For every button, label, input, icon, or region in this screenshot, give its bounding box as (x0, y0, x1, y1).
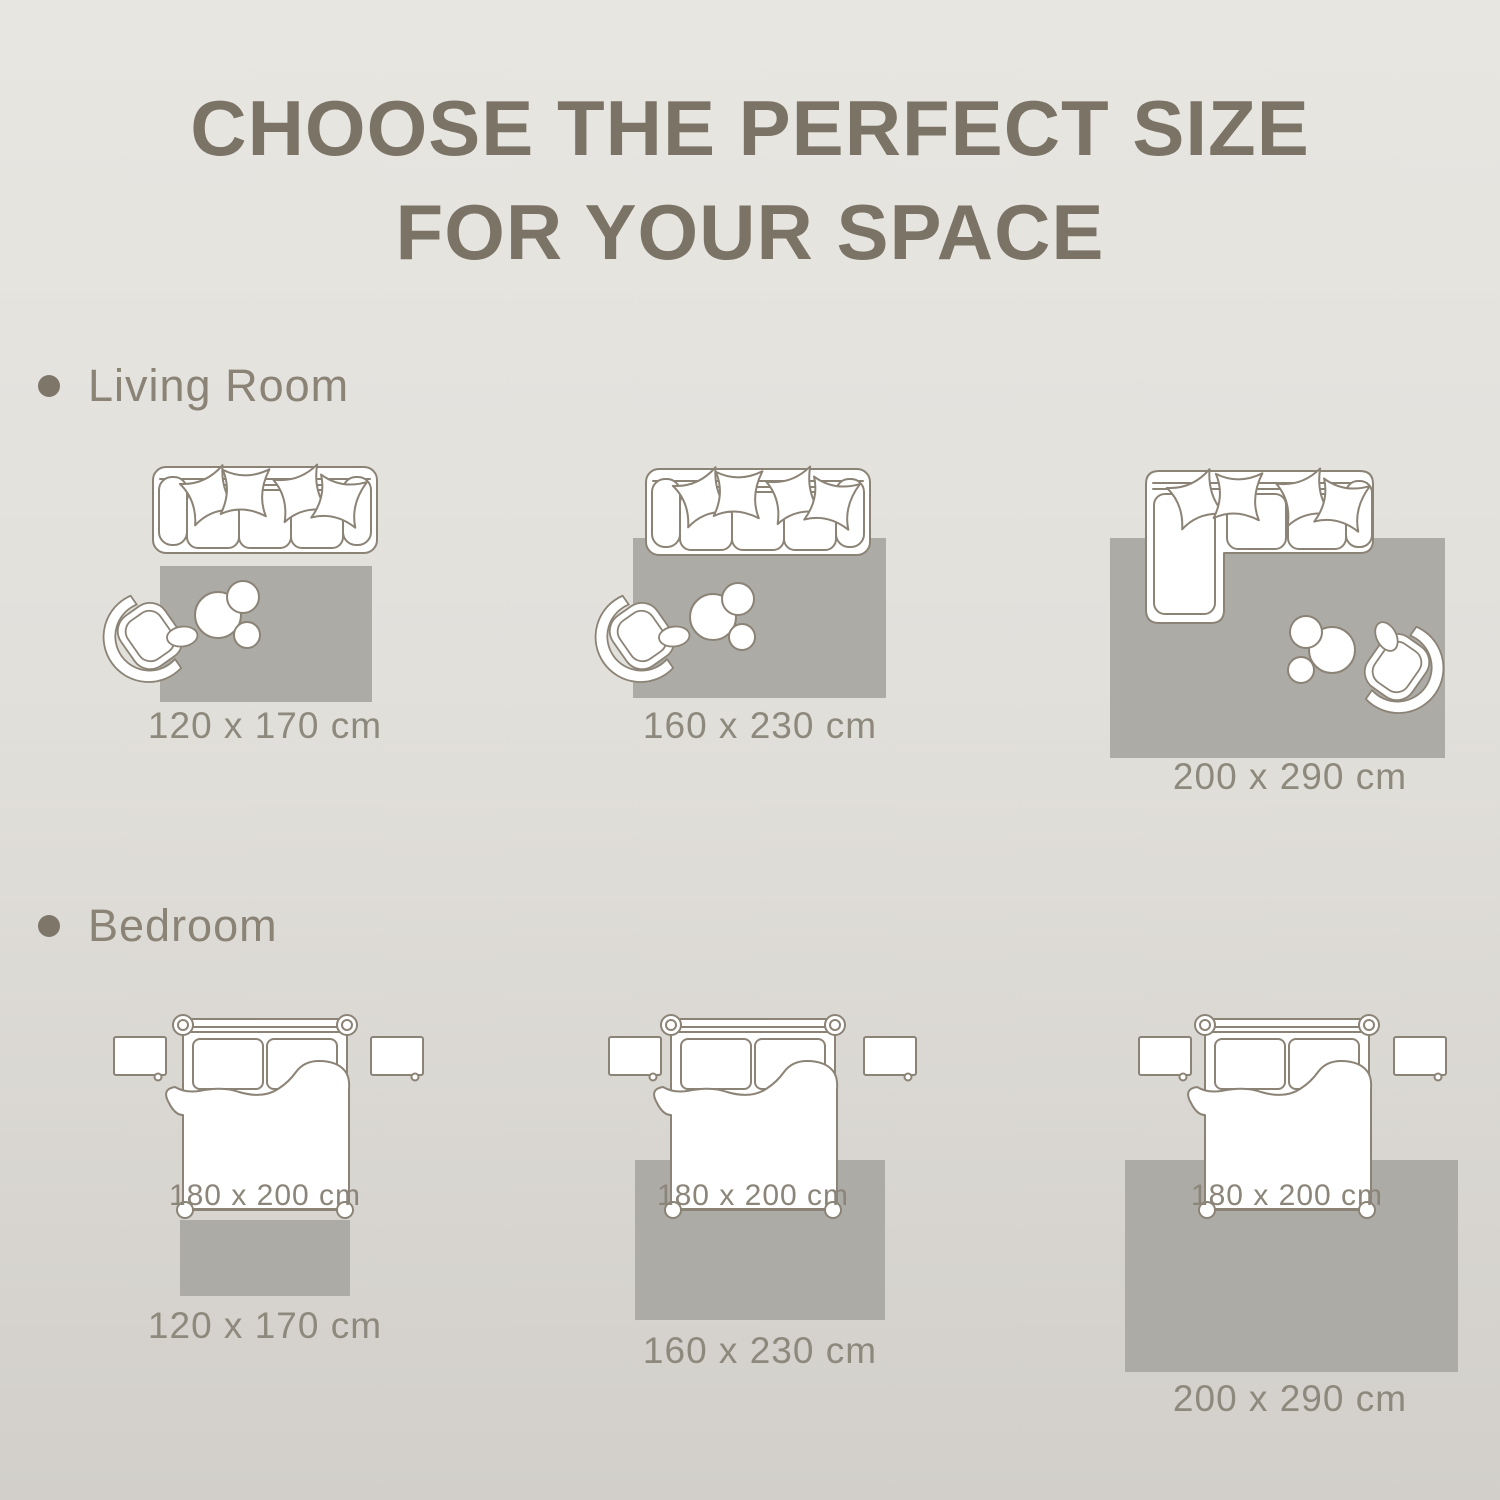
rug-size-label: 160 x 230 cm (595, 705, 925, 747)
page-title-line-2: FOR YOUR SPACE (0, 180, 1500, 284)
section-label-bedroom: Bedroom (88, 900, 278, 952)
sofa-illustration (646, 465, 870, 555)
section-label-living-room: Living Room (88, 360, 349, 412)
nightstand-illustration (609, 1037, 661, 1081)
living-room-figure-2 (590, 455, 920, 705)
living-room-figure-3 (1080, 455, 1480, 785)
rug-160x230 (633, 538, 886, 698)
page-title-line-1: CHOOSE THE PERFECT SIZE (0, 76, 1500, 180)
bed-size-label: 180 x 200 cm (657, 1179, 849, 1212)
rug-size-label: 120 x 170 cm (100, 1305, 430, 1347)
bed-size-label: 180 x 200 cm (169, 1179, 361, 1212)
bedroom-figure-3: 180 x 200 cm (1080, 1005, 1500, 1385)
nightstand-illustration (371, 1037, 423, 1081)
rug-size-infographic: CHOOSE THE PERFECT SIZE FOR YOUR SPACE L… (0, 0, 1500, 1500)
bedroom-figure-2: 180 x 200 cm (570, 1005, 950, 1335)
rug-size-label: 120 x 170 cm (100, 705, 430, 747)
bullet-icon (38, 375, 60, 397)
bullet-icon (38, 915, 60, 937)
nightstand-illustration (1394, 1037, 1446, 1081)
section-header-bedroom: Bedroom (38, 898, 278, 954)
sofa-illustration (153, 463, 377, 553)
bedroom-figure-1: 180 x 200 cm (80, 1005, 450, 1305)
nightstand-illustration (1139, 1037, 1191, 1081)
bed-size-label: 180 x 200 cm (1191, 1179, 1383, 1212)
section-header-living-room: Living Room (38, 358, 349, 414)
rug-size-label: 160 x 230 cm (595, 1330, 925, 1372)
rug-120x170 (180, 1220, 350, 1296)
nightstand-illustration (114, 1037, 166, 1081)
rug-size-label: 200 x 290 cm (1125, 756, 1455, 798)
living-room-figure-1 (100, 455, 420, 705)
nightstand-illustration (864, 1037, 916, 1081)
page-title: CHOOSE THE PERFECT SIZE FOR YOUR SPACE (0, 76, 1500, 284)
rug-size-label: 200 x 290 cm (1125, 1378, 1455, 1420)
